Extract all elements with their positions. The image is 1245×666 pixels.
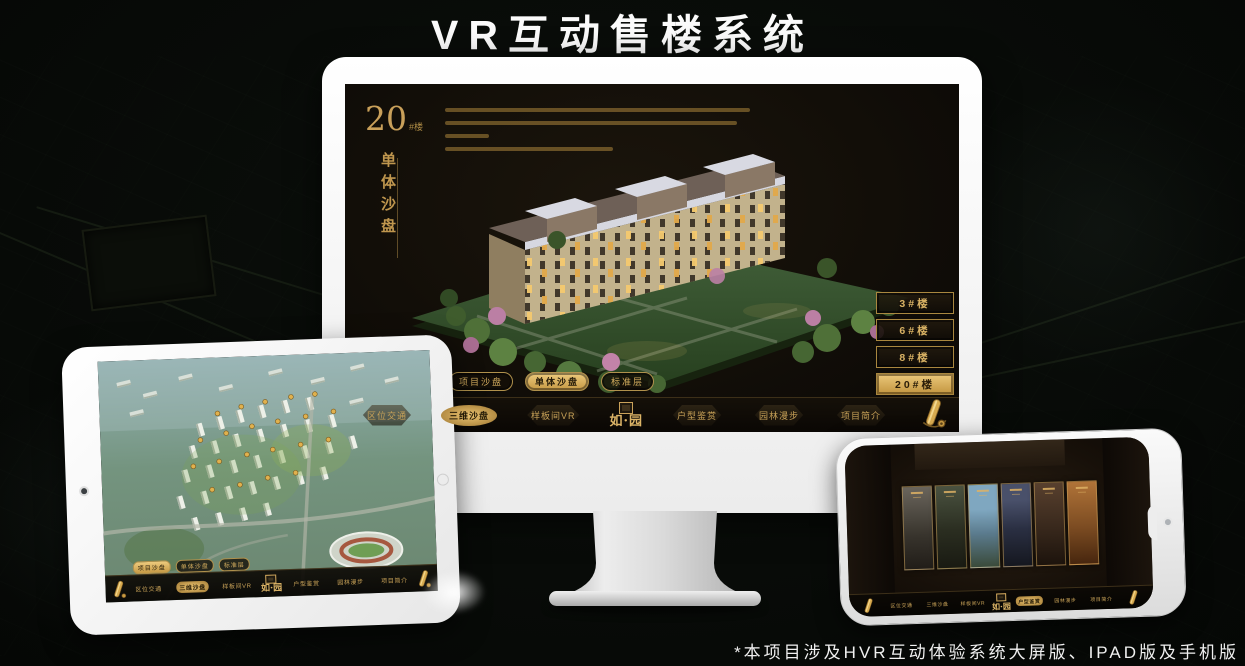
background-road-line xyxy=(958,319,1245,383)
brand-seal-icon xyxy=(996,593,1006,601)
tablet-screen: 项目沙盘 单体沙盘 标准层 区位交通 三维沙盘 样板间VR 如·园 户型鉴赏 园… xyxy=(98,350,438,602)
view-tab-group: 项目沙盘 单体沙盘 标准层 xyxy=(449,372,654,391)
nav-item-location[interactable]: 区位交通 xyxy=(884,596,918,612)
brand-logo: 如·园 xyxy=(992,593,1011,611)
phone-notch xyxy=(1147,504,1157,540)
monitor-stand xyxy=(535,511,775,613)
brand-logo-text: 如·园 xyxy=(992,602,1011,611)
tablet-tab-standard-floor[interactable]: 标准层 xyxy=(219,557,250,571)
menu-card[interactable] xyxy=(968,483,1001,568)
floor-button-3[interactable]: 3#楼 xyxy=(876,292,954,314)
phone-screen: 区位交通 三维沙盘 样板间VR 如·园 户型鉴赏 园林漫步 项目简介 xyxy=(844,437,1153,617)
brand-logo: 如·园 xyxy=(609,402,643,428)
tablet-tab-project-sandtable[interactable]: 项目沙盘 xyxy=(133,560,171,574)
menu-card-row xyxy=(902,480,1100,570)
floor-label: 20#楼 xyxy=(365,102,423,135)
nav-item-garden-walk[interactable]: 园林漫步 xyxy=(751,405,807,426)
nav-item-unit-plans[interactable]: 户型鉴赏 xyxy=(286,574,326,590)
phone-device: 区位交通 三维沙盘 样板间VR 如·园 户型鉴赏 园林漫步 项目简介 xyxy=(835,428,1187,627)
floor-button-group: 3#楼 6#楼 8#楼 20#楼 xyxy=(876,292,954,395)
nav-item-location[interactable]: 区位交通 xyxy=(359,405,415,426)
floor-button-8[interactable]: 8#楼 xyxy=(876,346,954,368)
tablet-device: 项目沙盘 单体沙盘 标准层 区位交通 三维沙盘 样板间VR 如·园 户型鉴赏 园… xyxy=(61,334,461,635)
nav-item-showroom-vr[interactable]: 样板间VR xyxy=(523,405,584,426)
gate-column-decoration xyxy=(1102,437,1153,609)
gate-column-decoration xyxy=(844,445,895,617)
tab-standard-floor[interactable]: 标准层 xyxy=(601,372,654,391)
tab-single-sandtable[interactable]: 单体沙盘 xyxy=(525,372,589,391)
nav-item-garden-walk[interactable]: 园林漫步 xyxy=(330,573,370,589)
menu-card[interactable] xyxy=(935,484,968,569)
background-plaque xyxy=(81,215,216,312)
nav-item-unit-plans[interactable]: 户型鉴赏 xyxy=(1012,590,1047,610)
nav-item-project-intro[interactable]: 项目简介 xyxy=(833,405,889,426)
brand-logo: 如·园 xyxy=(261,574,283,594)
scroll-icon[interactable] xyxy=(1126,588,1142,608)
background-road-line xyxy=(36,206,323,296)
phone-camera-icon xyxy=(1165,519,1171,525)
nav-item-project-intro[interactable]: 项目简介 xyxy=(1084,590,1118,606)
floor-button-20[interactable]: 20#楼 xyxy=(876,373,954,395)
menu-card[interactable] xyxy=(902,485,935,570)
nav-item-3d-sandtable[interactable]: 三维沙盘 xyxy=(173,576,214,596)
tablet-camera-icon xyxy=(81,488,87,494)
menu-card[interactable] xyxy=(1001,482,1034,567)
menu-card[interactable] xyxy=(1067,480,1100,565)
brand-logo-text: 如·园 xyxy=(261,584,282,594)
tablet-home-button[interactable] xyxy=(437,473,449,485)
brand-seal-icon xyxy=(619,402,633,414)
description-line xyxy=(445,134,489,138)
gate-beam-decoration xyxy=(914,439,1065,470)
description-line xyxy=(445,108,750,112)
floor-button-6[interactable]: 6#楼 xyxy=(876,319,954,341)
poster-footnote: *本项目涉及HVR互动体验系统大屏版、IPAD版及手机版 xyxy=(734,638,1239,663)
nav-item-showroom-vr[interactable]: 样板间VR xyxy=(217,577,257,593)
poster: VR互动售楼系统 20#楼 单体沙盘 xyxy=(0,0,1245,666)
scroll-icon[interactable] xyxy=(110,579,128,602)
nav-item-project-intro[interactable]: 项目简介 xyxy=(374,571,414,587)
floor-number-suffix: #楼 xyxy=(409,122,423,132)
background-road-line xyxy=(953,249,1245,353)
background-glow xyxy=(950,80,1245,380)
nav-item-3d-sandtable[interactable]: 三维沙盘 xyxy=(920,595,954,611)
nav-item-garden-walk[interactable]: 园林漫步 xyxy=(1048,591,1082,607)
nav-item-location[interactable]: 区位交通 xyxy=(129,580,169,596)
poster-title: VR互动售楼系统 xyxy=(0,1,1245,61)
tab-project-sandtable[interactable]: 项目沙盘 xyxy=(449,372,513,391)
scroll-icon[interactable] xyxy=(919,398,949,430)
brand-seal-icon xyxy=(266,574,277,583)
screen-glare xyxy=(421,569,486,615)
menu-card[interactable] xyxy=(1034,481,1067,566)
nav-item-unit-plans[interactable]: 户型鉴赏 xyxy=(669,405,725,426)
scroll-icon[interactable] xyxy=(861,596,877,616)
description-line xyxy=(445,121,737,125)
floor-number: 20 xyxy=(365,99,407,138)
nav-item-showroom-vr[interactable]: 样板间VR xyxy=(956,594,990,610)
nav-item-3d-sandtable[interactable]: 三维沙盘 xyxy=(441,405,497,426)
brand-logo-text: 如·园 xyxy=(609,415,643,428)
